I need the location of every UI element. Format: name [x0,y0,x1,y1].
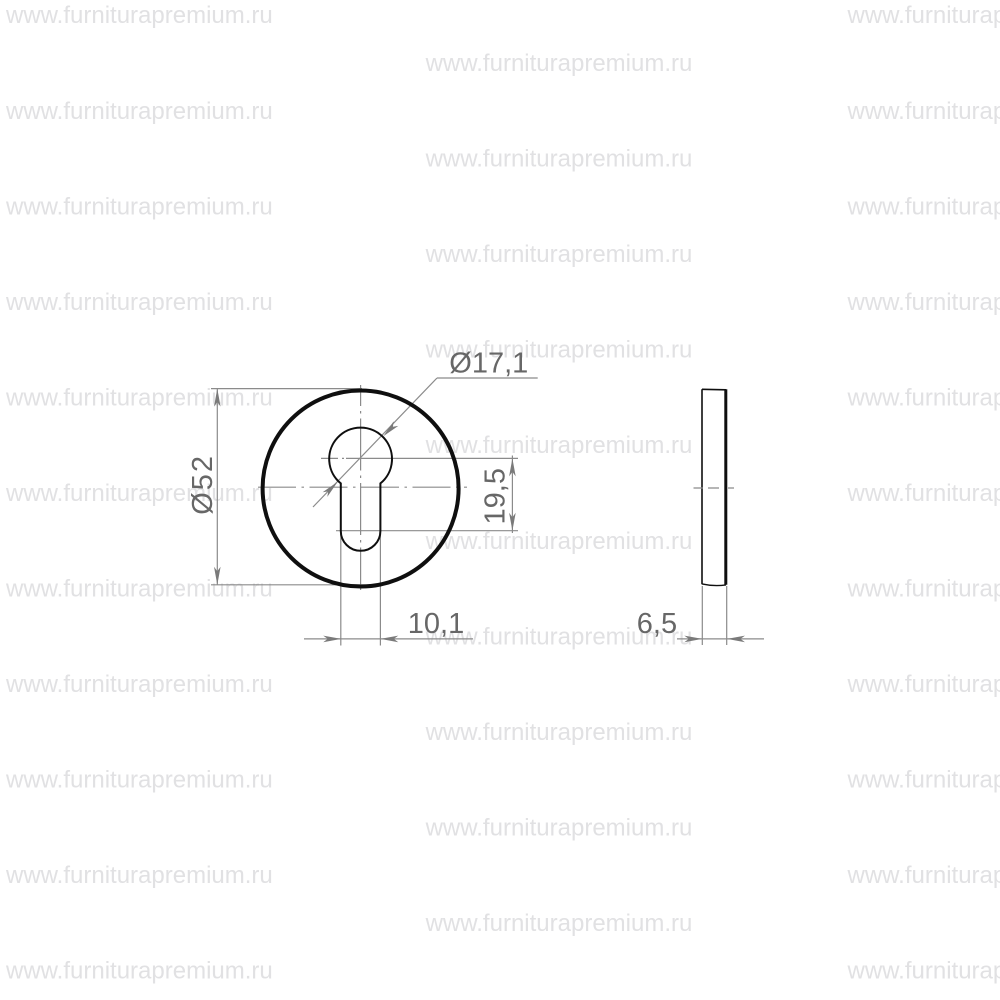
svg-text:www.furniturapremium.ru: www.furniturapremium.ru [5,289,273,316]
svg-text:www.furniturapremium.ru: www.furniturapremium.ru [5,193,273,220]
svg-text:www.furniturapremium.ru: www.furniturapremium.ru [847,862,1000,889]
svg-text:www.furniturapremium.ru: www.furniturapremium.ru [425,241,693,268]
svg-text:www.furniturapremium.ru: www.furniturapremium.ru [5,480,273,507]
svg-text:www.furniturapremium.ru: www.furniturapremium.ru [847,767,1000,794]
svg-text:6,5: 6,5 [637,608,677,640]
svg-text:www.furniturapremium.ru: www.furniturapremium.ru [847,958,1000,985]
svg-text:www.furniturapremium.ru: www.furniturapremium.ru [847,671,1000,698]
svg-text:www.furniturapremium.ru: www.furniturapremium.ru [5,958,273,985]
svg-text:10,1: 10,1 [408,608,464,640]
svg-text:www.furniturapremium.ru: www.furniturapremium.ru [847,98,1000,125]
svg-text:www.furniturapremium.ru: www.furniturapremium.ru [847,289,1000,316]
svg-text:www.furniturapremium.ru: www.furniturapremium.ru [425,528,693,555]
svg-text:www.furniturapremium.ru: www.furniturapremium.ru [425,719,693,746]
svg-text:Ø17,1: Ø17,1 [449,348,528,380]
svg-text:www.furniturapremium.ru: www.furniturapremium.ru [425,910,693,937]
svg-text:www.furniturapremium.ru: www.furniturapremium.ru [847,193,1000,220]
svg-text:www.furniturapremium.ru: www.furniturapremium.ru [847,576,1000,603]
svg-text:www.furniturapremium.ru: www.furniturapremium.ru [425,50,693,77]
svg-text:www.furniturapremium.ru: www.furniturapremium.ru [5,576,273,603]
svg-text:www.furniturapremium.ru: www.furniturapremium.ru [425,146,693,173]
svg-text:Ø52: Ø52 [187,454,219,515]
svg-text:www.furniturapremium.ru: www.furniturapremium.ru [425,432,693,459]
svg-text:www.furniturapremium.ru: www.furniturapremium.ru [847,2,1000,29]
svg-text:www.furniturapremium.ru: www.furniturapremium.ru [847,384,1000,411]
svg-text:www.furniturapremium.ru: www.furniturapremium.ru [5,862,273,889]
svg-text:www.furniturapremium.ru: www.furniturapremium.ru [425,814,693,841]
svg-text:www.furniturapremium.ru: www.furniturapremium.ru [847,480,1000,507]
svg-text:www.furniturapremium.ru: www.furniturapremium.ru [5,671,273,698]
svg-text:www.furniturapremium.ru: www.furniturapremium.ru [5,767,273,794]
svg-text:19,5: 19,5 [480,468,512,524]
svg-text:www.furniturapremium.ru: www.furniturapremium.ru [5,98,273,125]
svg-text:www.furniturapremium.ru: www.furniturapremium.ru [5,2,273,29]
